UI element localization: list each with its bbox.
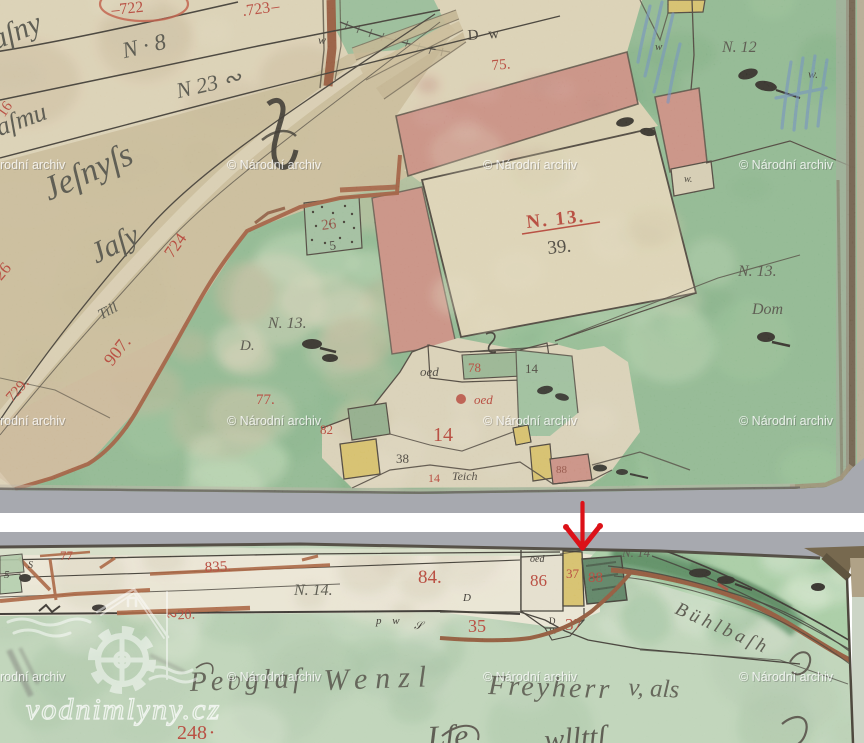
svg-text:© Národní archiv: © Národní archiv <box>227 670 322 684</box>
svg-text:vodnimlyny.cz: vodnimlyny.cz <box>26 693 221 726</box>
svg-text:rodní archiv: rodní archiv <box>0 158 66 172</box>
svg-text:© Národní archiv: © Národní archiv <box>227 158 322 172</box>
svg-text:© Národní archiv: © Národní archiv <box>227 414 322 428</box>
svg-text:© Národní archiv: © Národní archiv <box>739 670 834 684</box>
svg-text:© Národní archiv: © Národní archiv <box>739 414 834 428</box>
svg-text:rodní archiv: rodní archiv <box>0 414 66 428</box>
svg-text:rodní archiv: rodní archiv <box>0 670 66 684</box>
svg-text:© Národní archiv: © Národní archiv <box>483 670 578 684</box>
svg-text:© Národní archiv: © Národní archiv <box>739 158 834 172</box>
svg-text:© Národní archiv: © Národní archiv <box>483 414 578 428</box>
svg-text:© Národní archiv: © Národní archiv <box>483 158 578 172</box>
